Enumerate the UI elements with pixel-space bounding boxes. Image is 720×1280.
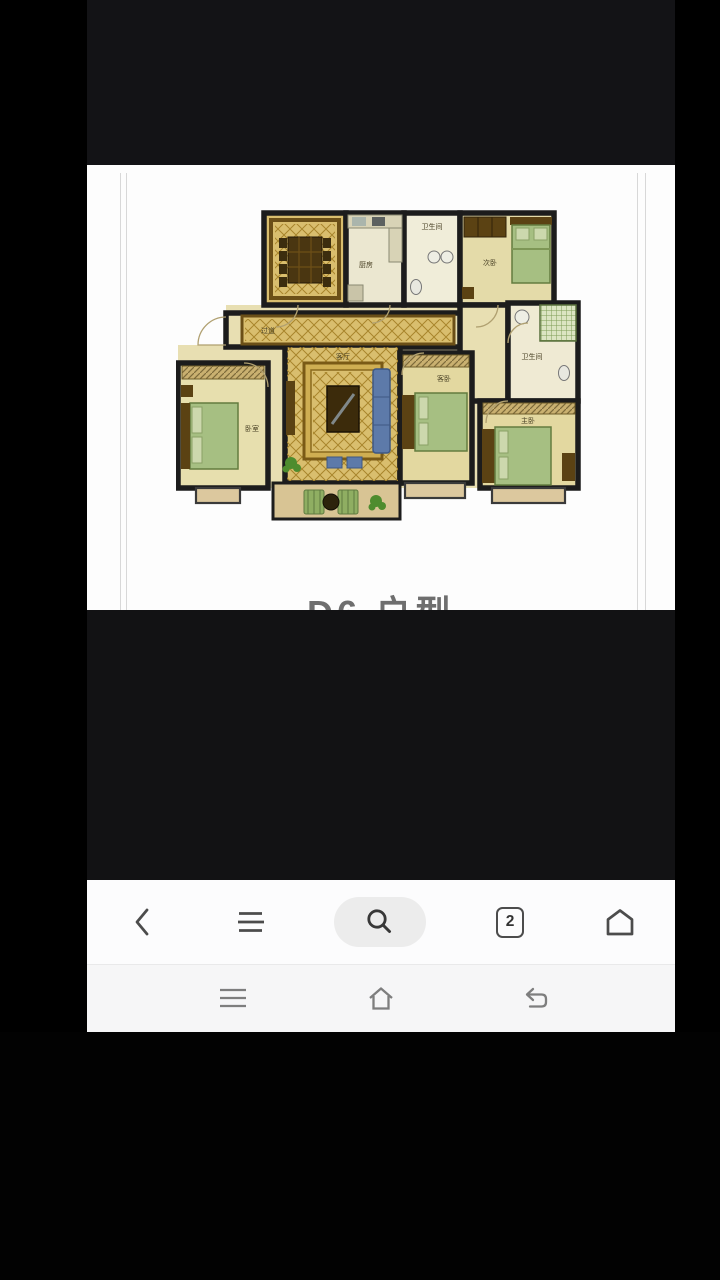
home-house-icon [366, 984, 396, 1012]
back-chevron-icon [132, 906, 152, 938]
browser-toolbar: 2 [87, 880, 675, 964]
room-label-bedroom-mid: 客卧 [437, 374, 451, 383]
tab-counter-icon: 2 [496, 907, 524, 938]
room-label-hallway: 过道 [261, 326, 275, 335]
browser-search-button[interactable] [334, 897, 426, 947]
browser-home-button[interactable] [605, 907, 635, 937]
nav-home-button[interactable] [366, 984, 396, 1012]
tab-count: 2 [506, 913, 515, 931]
room-label-living: 客厅 [336, 352, 350, 361]
floorplan-photo-card[interactable]: 厨房 卫生间 次卧 过道 卫生间 卧室 客厅 客卧 主卧 D6 户型 [87, 165, 675, 610]
browser-menu-button[interactable] [237, 908, 265, 936]
floorplan-caption: D6 户型 [87, 585, 675, 610]
page-black-area [0, 1032, 720, 1280]
page-dark-area-bottom [87, 610, 675, 880]
nav-back-button[interactable] [522, 986, 550, 1010]
phone-screen: 厨房 卫生间 次卧 过道 卫生间 卧室 客厅 客卧 主卧 D6 户型 [0, 0, 720, 1280]
system-nav-bar [87, 964, 675, 1032]
card-border-line [120, 173, 121, 610]
page-dark-area-top [87, 0, 675, 165]
home-outline-icon [605, 907, 635, 937]
card-border-line [637, 173, 638, 610]
browser-back-button[interactable] [127, 906, 157, 938]
back-return-icon [522, 986, 550, 1010]
apartment-floorplan-image: 厨房 卫生间 次卧 过道 卫生间 卧室 客厅 客卧 主卧 [176, 205, 586, 525]
card-border-line [645, 173, 646, 610]
room-label-bath-right: 卫生间 [522, 352, 543, 361]
room-label-bedroom-tr: 次卧 [483, 258, 497, 267]
nav-recents-button[interactable] [219, 984, 247, 1012]
browser-tabs-button[interactable]: 2 [496, 908, 524, 936]
recents-lines-icon [219, 984, 247, 1012]
menu-lines-icon [237, 908, 265, 936]
search-icon [365, 907, 395, 937]
room-label-bath-top: 卫生间 [422, 222, 443, 231]
room-label-master: 主卧 [521, 416, 535, 425]
card-border-line [126, 173, 127, 610]
room-label-bedroom-left: 卧室 [245, 424, 259, 433]
room-label-kitchen: 厨房 [359, 260, 373, 269]
